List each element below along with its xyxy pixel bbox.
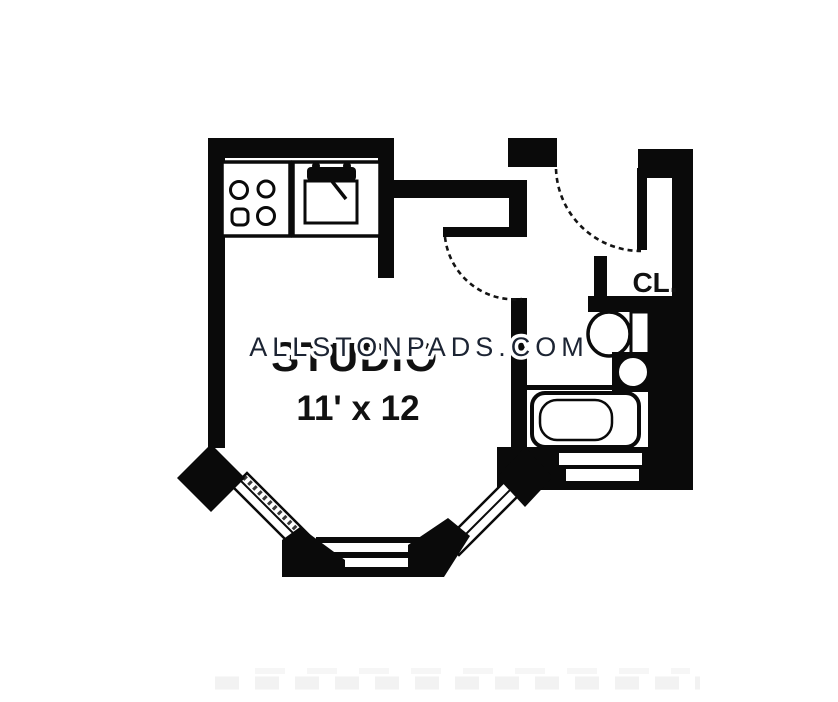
corridor-wall [393,180,527,198]
kitchen-north-wall [208,138,393,158]
room-dimensions-label: 11' x 12 [296,389,419,428]
bathroom-window-pane [566,469,639,481]
scan-artifacts [215,671,700,683]
kitchen [222,162,380,236]
entry-door-swing-arc [556,169,641,251]
bathroom-north-wall [588,296,693,312]
bathroom-window-pane [559,453,642,465]
studio-door-wall-stub [443,227,527,237]
closet-label: CL. [632,267,677,298]
faucet-knob-icon [343,162,351,170]
site-watermark: ALLSTONPADS.COM [249,332,589,362]
entry-left-jamb [508,138,557,167]
closet-west-wall [637,168,647,250]
stove-counter [222,162,290,236]
faucet-knob-icon [312,162,320,170]
studio-door-swing-arc [445,237,522,299]
toilet-bowl [588,312,630,356]
bay-center-window-line [316,537,424,543]
bathroom-sink [618,357,649,388]
floor-plan: STUDIO 11' x 12 CL. ALLSTONPADS.COM [0,0,838,697]
bay-window [177,444,553,577]
bay-west-corner-post [177,444,245,512]
floor-plan-drawing: STUDIO 11' x 12 CL. ALLSTONPADS.COM [0,0,838,697]
toilet-tank [631,312,649,357]
